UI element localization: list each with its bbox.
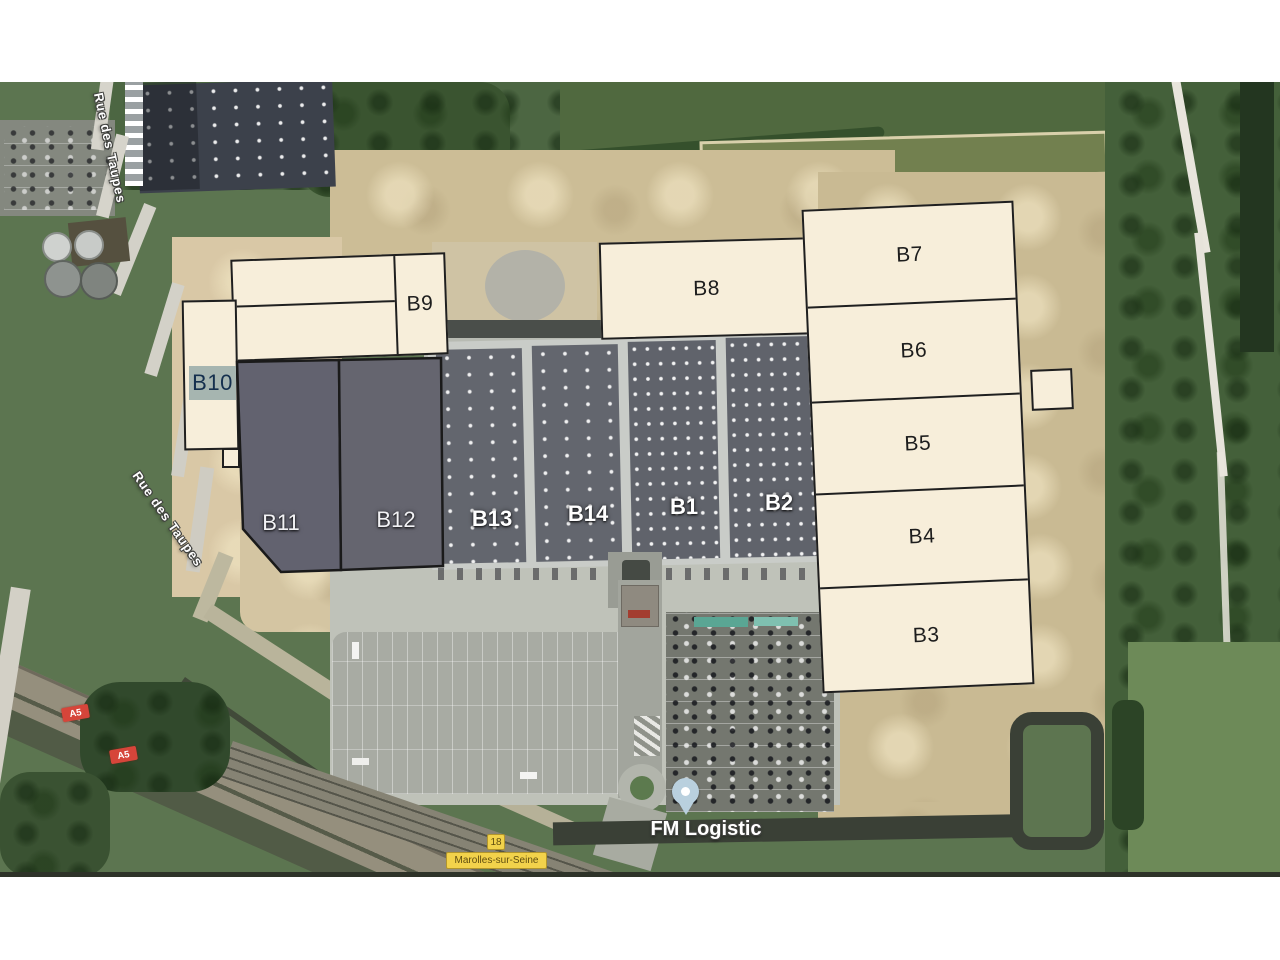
map-bottom-edge: [0, 872, 1280, 877]
tank-pad: [485, 250, 565, 322]
route-badge-18-text: 18: [490, 837, 501, 848]
parking-lot: [332, 632, 625, 794]
motorway-badge-a5-2-text: A5: [117, 749, 131, 762]
parcel-b9-label: B9: [406, 292, 434, 317]
canopy: [754, 617, 798, 626]
parcel-b3[interactable]: B3: [820, 578, 1032, 691]
roof-section: [532, 344, 623, 562]
gatehouse: [621, 585, 659, 627]
parcel-b11-label: B11: [262, 510, 300, 536]
existing-warehouse-roof: [136, 82, 200, 191]
parcel-b10-chip[interactable]: B10: [189, 366, 236, 400]
silo: [42, 232, 72, 262]
parcel-b4[interactable]: B4: [816, 484, 1028, 587]
map-pin-point: [677, 800, 695, 815]
parcel-b3-label: B3: [912, 623, 940, 648]
parcel-b12-shape[interactable]: [339, 358, 443, 570]
motorway-badge-a5-text: A5: [69, 707, 83, 720]
map-pin-dot: [681, 787, 690, 796]
truck: [352, 758, 369, 765]
parcel-column-east[interactable]: B7 B6 B5 B4 B3: [802, 201, 1035, 694]
map-pin-label-text: FM Logistic: [650, 818, 761, 841]
parcel-b6[interactable]: B6: [808, 298, 1020, 402]
parcel-b5-label: B5: [904, 431, 932, 456]
warehouse-roof: [428, 334, 821, 570]
truck-bays: [125, 82, 143, 186]
screenshot: B9 B10 B11 B12 B8 B7 B6 B5: [0, 0, 1280, 960]
roundabout-center: [630, 776, 654, 800]
unit-b1-label: B1: [670, 494, 698, 520]
unit-b2-label: B2: [765, 490, 793, 516]
gatehouse-detail: [628, 610, 650, 618]
parcel-b10-label: B10: [192, 370, 233, 396]
basin-road-loop: [1010, 712, 1104, 850]
satellite-map[interactable]: B9 B10 B11 B12 B8 B7 B6 B5: [0, 82, 1280, 877]
canopy: [694, 617, 748, 627]
route-badge-18[interactable]: 18: [487, 834, 505, 850]
parcel-b5[interactable]: B5: [812, 393, 1024, 494]
parcel-divider: [234, 300, 395, 308]
parcel-b8-label: B8: [693, 276, 720, 301]
parcel-b6-annex[interactable]: [1030, 368, 1074, 411]
parcel-b4-label: B4: [908, 524, 936, 549]
roof-section: [628, 340, 721, 560]
parcel-b11-shape[interactable]: [237, 360, 341, 572]
parcel-b12-label: B12: [376, 507, 415, 533]
terrain-trees: [80, 682, 230, 792]
parcel-b8[interactable]: B8: [599, 237, 814, 340]
parcel-b7[interactable]: B7: [804, 203, 1016, 307]
parcel-b6-label: B6: [900, 338, 928, 363]
zebra-crossing: [634, 716, 660, 756]
map-pin-label[interactable]: FM Logistic: [626, 818, 786, 841]
silo: [74, 230, 104, 260]
terrain-dark: [432, 320, 602, 338]
parcel-b7-label: B7: [896, 242, 924, 267]
town-label-marolles-text: Marolles-sur-Seine: [455, 855, 539, 866]
silo: [80, 262, 118, 300]
terrain-water-channel: [1240, 82, 1274, 352]
parcel-b9[interactable]: B9: [393, 254, 446, 354]
roof-section: [726, 336, 819, 558]
ditch: [1112, 700, 1144, 830]
unit-b13-label: B13: [472, 506, 512, 532]
town-label-marolles[interactable]: Marolles-sur-Seine: [446, 852, 547, 869]
parcels-b11-b12[interactable]: [233, 352, 447, 576]
unit-b14-label: B14: [568, 501, 608, 527]
terrain-trees: [0, 772, 110, 877]
terrain-field: [1128, 642, 1280, 877]
truck: [352, 642, 359, 659]
parcel-band-north[interactable]: B9: [230, 252, 448, 361]
silo: [44, 260, 82, 298]
truck: [520, 772, 537, 779]
